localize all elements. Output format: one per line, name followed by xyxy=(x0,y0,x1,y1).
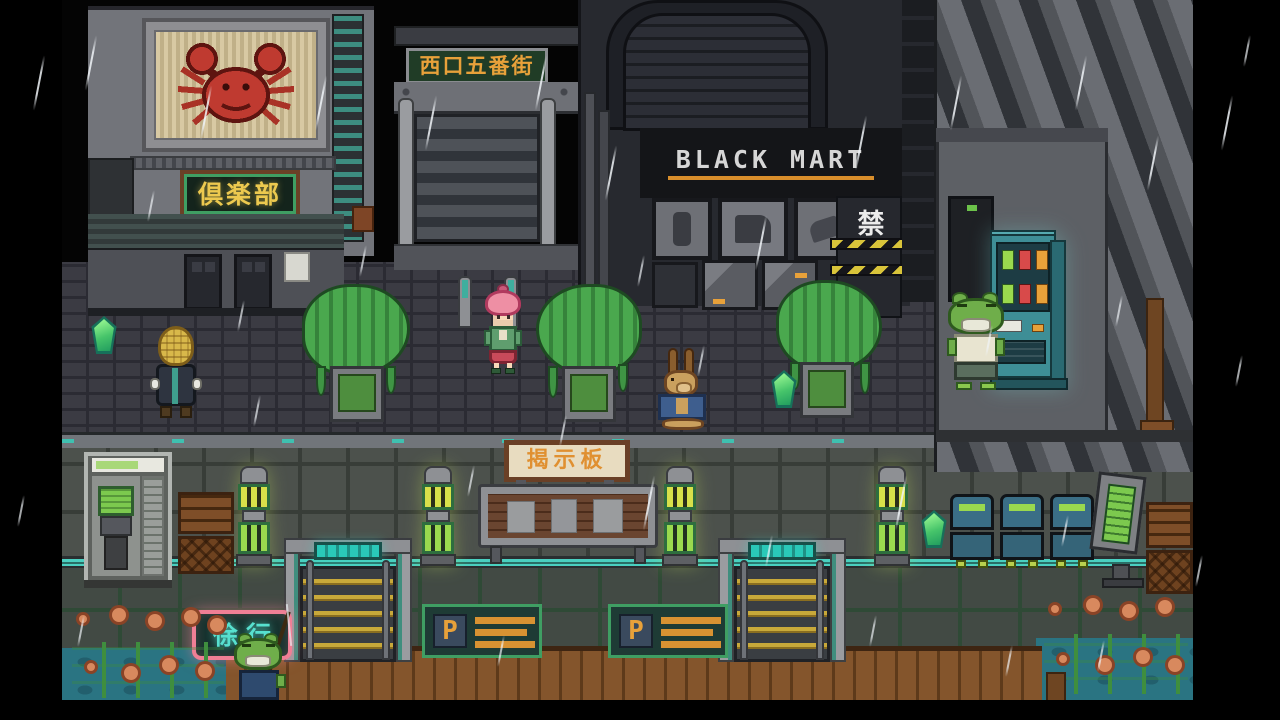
kangaroo-chest xyxy=(676,398,688,414)
gate-base xyxy=(394,244,580,270)
gem-facet xyxy=(923,513,945,545)
fisher-jacket xyxy=(239,670,279,700)
dock-post xyxy=(1046,672,1066,702)
stair-rail xyxy=(382,560,390,660)
payphone-screen[interactable] xyxy=(98,486,134,516)
planter-grass xyxy=(808,370,846,408)
stair-rail xyxy=(740,560,748,660)
bottle-item xyxy=(673,212,691,246)
lantern-glow-lower xyxy=(876,522,908,554)
fisher-arm xyxy=(276,674,286,688)
villager-coat-trim xyxy=(172,368,178,404)
hazard-stripe-bar xyxy=(830,238,904,250)
parking-letter-tile: P xyxy=(619,614,653,648)
drink-bottle xyxy=(1036,250,1048,270)
seat-back xyxy=(1000,494,1044,530)
mart-door-glass[interactable] xyxy=(702,260,758,310)
planter-grass xyxy=(338,374,376,412)
bulletin-board[interactable]: 揭示板 xyxy=(478,440,660,566)
sign-text-bar xyxy=(661,629,713,636)
lantern-mid xyxy=(880,510,904,522)
basket-hat xyxy=(158,326,194,366)
girl-hair xyxy=(485,290,521,316)
flower-bloom xyxy=(1048,602,1062,616)
lantern-mid xyxy=(242,510,266,522)
payphone-stand xyxy=(104,536,128,570)
frog-arm xyxy=(947,338,957,356)
lantern-glow-upper xyxy=(876,484,908,510)
shop-door-left[interactable] xyxy=(184,254,222,310)
flower-cluster xyxy=(66,606,230,702)
lantern-glow-lower xyxy=(664,522,696,554)
seat-foot xyxy=(1078,560,1088,568)
stairway-down[interactable] xyxy=(284,538,414,664)
lantern-cap xyxy=(878,466,906,484)
crate-stack xyxy=(178,492,234,574)
planter-grass xyxy=(570,374,608,412)
seat-accent-bar xyxy=(1009,504,1035,511)
pink-haired-girl[interactable] xyxy=(480,284,526,374)
phone-booth[interactable] xyxy=(84,452,172,588)
seat-back xyxy=(1050,494,1094,530)
sign-text-bar xyxy=(475,617,535,624)
crab-icon xyxy=(170,39,302,131)
booth-top-bar xyxy=(92,458,164,472)
frog-mouth xyxy=(245,655,271,667)
tree-canopy xyxy=(776,280,882,372)
crate-bottom xyxy=(178,536,234,574)
board-leg xyxy=(490,546,502,564)
lantern-mid xyxy=(668,510,692,522)
frog-arm xyxy=(995,338,1005,356)
drink-bottle xyxy=(1002,250,1014,270)
girl-skirt xyxy=(489,350,517,364)
booth-door-column xyxy=(142,476,164,576)
letterbox-left xyxy=(0,0,62,720)
board-leg xyxy=(634,546,646,564)
seat-accent-bar xyxy=(1059,504,1085,511)
stair-rail xyxy=(816,560,824,660)
parking-letter: P xyxy=(442,618,458,644)
bench-row xyxy=(950,494,1098,570)
hazard-stripe-bar xyxy=(830,264,904,276)
lantern-base xyxy=(662,554,698,566)
tree-frond xyxy=(548,366,558,398)
mart-underline xyxy=(668,176,874,180)
seat-foot xyxy=(1028,560,1038,568)
recessed-doorway[interactable] xyxy=(948,196,994,302)
willow-tree xyxy=(302,284,412,424)
drain-pipe xyxy=(1146,298,1164,436)
stair-column xyxy=(396,552,412,662)
club-sign-text: 倶楽部 xyxy=(198,182,282,207)
posted-notice[interactable] xyxy=(551,499,577,533)
mid-building-cornice xyxy=(936,128,1108,142)
seat-foot xyxy=(1056,560,1066,568)
boot-item xyxy=(735,215,771,243)
girl-shoe xyxy=(491,368,501,374)
frog-closed-eye xyxy=(986,304,996,307)
sign-text-bar xyxy=(661,641,721,648)
lantern-cap xyxy=(666,466,694,484)
tree-canopy xyxy=(536,284,642,376)
girl-eye xyxy=(497,315,500,319)
drink-bottle xyxy=(1019,250,1031,270)
door-light xyxy=(967,205,977,211)
black-mart-building: BLACK MART 禁 xyxy=(578,0,912,310)
flower-bloom xyxy=(76,612,90,626)
drink-bottle xyxy=(1019,284,1031,304)
seat-accent-bar xyxy=(959,504,985,511)
tree-canopy xyxy=(302,284,410,376)
lantern-glow-lower xyxy=(422,522,454,554)
parking-sign-left: P xyxy=(422,604,542,658)
sign-text-bar xyxy=(475,641,535,648)
lantern-glow-upper xyxy=(664,484,696,510)
shop-awning-roof xyxy=(88,214,344,252)
tree-planter xyxy=(330,366,384,422)
frog-closed-eye xyxy=(957,304,967,307)
gate-rail-left xyxy=(398,98,414,246)
street-lantern xyxy=(662,466,698,568)
crate-top xyxy=(1146,502,1193,548)
seat-foot xyxy=(956,560,966,568)
crate-top xyxy=(178,492,234,534)
mart-tower-inner xyxy=(623,13,811,131)
parking-sign-right: P xyxy=(608,604,728,658)
bench-seat[interactable] xyxy=(1050,494,1094,570)
gate-stairs-up[interactable] xyxy=(414,114,540,242)
girl-inner-shirt xyxy=(499,330,507,340)
booth-green-strip xyxy=(96,461,138,469)
frog-closed-eye xyxy=(242,644,251,647)
lantern-mid xyxy=(426,510,450,522)
girl-eye xyxy=(507,315,510,319)
girl-arm xyxy=(514,330,522,346)
crab-shop-building: 倶楽部 xyxy=(88,6,374,316)
bulletin-sign-text: 揭示板 xyxy=(526,450,607,472)
letterbox-bottom xyxy=(0,700,1280,720)
frog-shirt xyxy=(954,334,998,364)
parking-letter: P xyxy=(628,618,644,644)
mart-window xyxy=(652,198,712,260)
tree-planter xyxy=(800,362,854,418)
mart-window xyxy=(718,198,788,260)
sign-text-bar xyxy=(661,617,721,624)
seat-foot xyxy=(978,560,988,568)
street-lantern xyxy=(874,466,910,568)
mart-pipe xyxy=(584,92,596,306)
girl-arm xyxy=(484,330,492,346)
frog-foot xyxy=(956,382,972,390)
seat-foot xyxy=(1006,560,1016,568)
mart-lower-panel xyxy=(652,262,698,308)
gate-sign: 西口五番街 xyxy=(406,48,548,84)
street-lantern xyxy=(236,466,272,568)
game-viewport[interactable]: 倶楽部 西口五番街 xyxy=(0,0,1280,720)
shop-door-right[interactable] xyxy=(234,254,272,310)
shop-bracket xyxy=(352,206,374,232)
gem-facet xyxy=(93,319,115,351)
mart-fascia: BLACK MART xyxy=(640,128,902,198)
stair-sign-panel xyxy=(314,542,382,560)
posted-notice[interactable] xyxy=(507,501,535,533)
shop-poster xyxy=(284,252,310,282)
stair-column xyxy=(830,552,846,662)
lantern-base xyxy=(236,554,272,566)
tree-planter xyxy=(562,366,616,422)
kiosk-base xyxy=(1102,578,1144,588)
gate-rail-right xyxy=(540,98,556,246)
stair-sign-panel xyxy=(748,542,816,560)
payphone-body xyxy=(100,516,132,536)
coin-slot[interactable] xyxy=(1032,324,1044,332)
frog-shorts xyxy=(954,362,998,380)
frog-closed-eye xyxy=(266,644,275,647)
booth-base xyxy=(84,580,172,588)
flower-bloom xyxy=(84,660,98,674)
door-window xyxy=(205,262,215,272)
price-tag xyxy=(713,299,725,304)
mart-tower xyxy=(606,0,828,130)
kangaroo-snout xyxy=(676,382,692,394)
willow-tree xyxy=(536,284,646,424)
villager-shoe xyxy=(180,406,192,418)
mart-pipe xyxy=(598,110,610,306)
crate-stack xyxy=(1146,502,1193,596)
forbidden-sign-text: 禁 xyxy=(858,211,885,238)
lantern-glow-lower xyxy=(238,522,270,554)
forbidden-sign: 禁 xyxy=(850,206,892,242)
seat-pad xyxy=(1050,532,1094,560)
gate-beam xyxy=(394,26,580,46)
mart-sign-text: BLACK MART xyxy=(676,147,867,172)
board-frame xyxy=(478,484,658,548)
bollard-cap xyxy=(462,280,468,298)
price-tag xyxy=(795,273,807,278)
kiosk-face xyxy=(1089,471,1146,554)
tree-frond xyxy=(618,364,628,392)
basket-hat-villager[interactable] xyxy=(150,326,202,420)
flower-bloom xyxy=(1056,652,1070,666)
villager-hand xyxy=(150,378,160,390)
door-window xyxy=(255,262,265,272)
lantern-base xyxy=(874,554,910,566)
crab-billboard xyxy=(142,18,330,152)
vending-side xyxy=(1050,240,1066,380)
tree-frond xyxy=(860,362,870,394)
tree-frond xyxy=(316,366,326,396)
bench-seat[interactable] xyxy=(950,494,994,570)
door-window xyxy=(242,262,252,272)
lantern-cap xyxy=(240,466,268,484)
girl-shoe xyxy=(505,368,515,374)
lantern-glow-upper xyxy=(422,484,454,510)
kangaroo-eye xyxy=(671,378,674,381)
stair-rail xyxy=(306,560,314,660)
villager-hand xyxy=(192,378,202,390)
letterbox-right xyxy=(1193,0,1280,720)
kiosk-screen[interactable] xyxy=(1101,484,1136,545)
kangaroo-tail-base xyxy=(662,418,704,430)
kangaroo-villager[interactable] xyxy=(650,348,718,434)
seat-pad xyxy=(950,532,994,560)
info-kiosk[interactable] xyxy=(1094,472,1150,590)
frog-fisher[interactable] xyxy=(230,638,292,702)
parking-letter-tile: P xyxy=(433,614,467,648)
frog-mouth xyxy=(961,318,991,332)
frog-villager[interactable] xyxy=(944,296,1010,394)
seat-pad xyxy=(1000,532,1044,560)
frog-foot xyxy=(980,382,996,390)
gate-sign-text: 西口五番街 xyxy=(420,56,535,77)
gate-bollard-left xyxy=(458,276,472,328)
door-window xyxy=(192,262,202,272)
building-base-shadow xyxy=(936,430,1193,442)
villager-shoe xyxy=(160,406,172,418)
billboard-screen xyxy=(154,30,318,140)
sign-text-bar xyxy=(475,629,527,636)
posted-notice[interactable] xyxy=(593,499,623,533)
gem-facet xyxy=(773,373,795,405)
bench-seat[interactable] xyxy=(1000,494,1044,570)
crate-bottom xyxy=(1146,550,1193,594)
bulletin-sign: 揭示板 xyxy=(504,440,630,482)
shop-vent-band xyxy=(130,156,336,170)
seat-back xyxy=(950,494,994,530)
street-lantern xyxy=(420,466,456,568)
stairway-down[interactable] xyxy=(718,538,848,664)
street-gate: 西口五番街 xyxy=(394,26,580,278)
mart-right-edge xyxy=(902,0,938,302)
drink-bottle xyxy=(1036,284,1048,304)
lantern-base xyxy=(420,554,456,566)
tree-frond xyxy=(386,366,396,394)
lantern-glow-upper xyxy=(238,484,270,510)
lantern-cap xyxy=(424,466,452,484)
club-sign: 倶楽部 xyxy=(180,170,300,218)
